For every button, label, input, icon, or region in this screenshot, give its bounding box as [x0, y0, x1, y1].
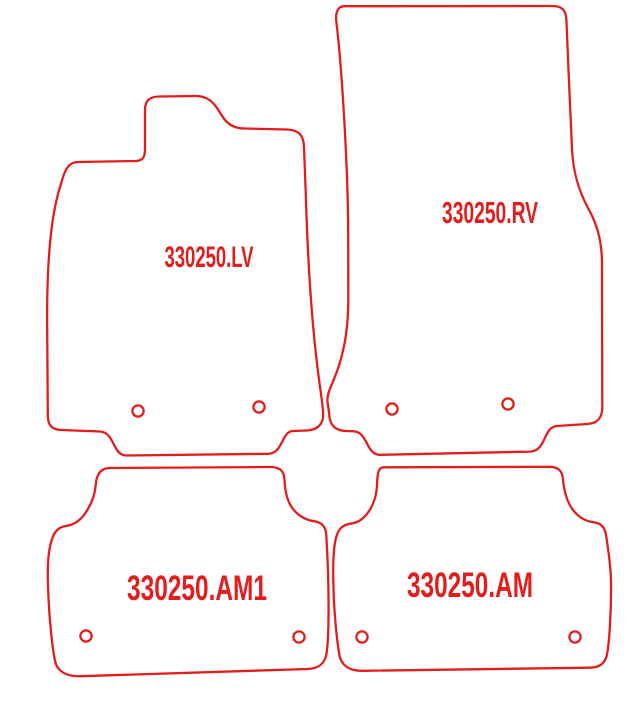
fixing-hole	[253, 401, 264, 412]
mat-label-front-left: 330250.LV	[165, 241, 254, 274]
fixing-hole	[386, 403, 397, 414]
mat-label-rear-left: 330250.AM1	[127, 569, 267, 608]
mat-rear-right: 330250.AM	[333, 467, 611, 671]
mat-outline-front-left	[47, 96, 323, 456]
fixing-hole	[569, 631, 580, 642]
mats-layer: 330250.LV330250.RV330250.AM1330250.AM	[47, 6, 611, 676]
mat-rear-left: 330250.AM1	[48, 467, 329, 676]
fixing-hole	[293, 631, 304, 642]
mat-front-left: 330250.LV	[47, 96, 323, 456]
fixing-hole	[502, 398, 513, 409]
fixing-hole	[80, 630, 91, 641]
mat-label-front-right: 330250.RV	[442, 195, 538, 230]
mat-outline-front-right	[327, 6, 602, 455]
mat-pattern-drawing: 330250.LV330250.RV330250.AM1330250.AM	[0, 0, 639, 704]
mat-label-rear-right: 330250.AM	[407, 566, 533, 605]
fixing-hole	[356, 631, 367, 642]
fixing-hole	[132, 405, 143, 416]
mat-front-right: 330250.RV	[327, 6, 602, 455]
mat-pattern-svg: 330250.LV330250.RV330250.AM1330250.AM	[0, 0, 639, 704]
